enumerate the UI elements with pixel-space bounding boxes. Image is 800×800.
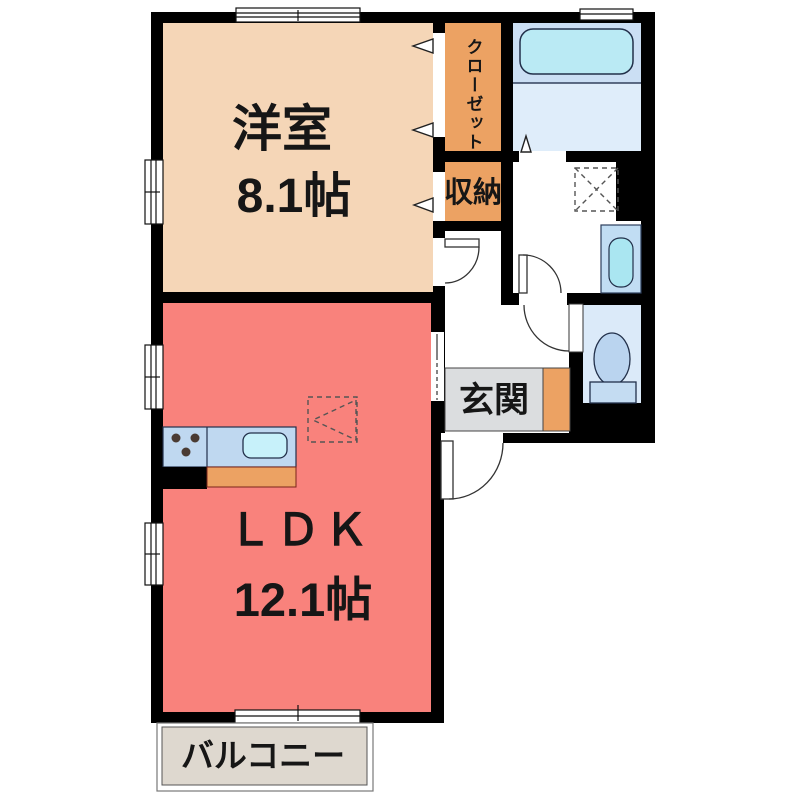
kitchen-sink-icon (243, 433, 287, 458)
shoe-cabinet (543, 368, 570, 431)
entrance-door (441, 441, 503, 499)
closet-opening (433, 33, 445, 137)
window-bathroom-top (580, 9, 633, 20)
ldk-label: ＬＤＫ (228, 506, 372, 555)
closet-label: クローゼット (464, 38, 484, 152)
entrance-label: 玄関 (459, 381, 529, 420)
kitchen (151, 427, 296, 489)
western-room-label: 洋室 (232, 101, 332, 157)
window-western-left (145, 160, 163, 224)
floor-plan: 洋室 8.1帖 クローゼット 収納 ＬＤＫ 12.1帖 玄関 バルコニー (0, 0, 800, 800)
vanity-sink-icon (601, 225, 641, 293)
western-room-door-opening (433, 238, 445, 286)
room-western (163, 23, 433, 292)
window-ldk-left (145, 523, 163, 585)
washroom-door-opening (519, 293, 567, 305)
window-kitchen-left (145, 345, 163, 409)
ldk-size: 12.1帖 (234, 573, 372, 626)
western-room-size: 8.1帖 (237, 170, 352, 223)
bathroom-lower (513, 83, 641, 151)
toilet-door-opening (569, 304, 583, 352)
bathtub-icon (520, 29, 633, 74)
window-western-top (236, 8, 360, 22)
balcony-label: バルコニー (181, 737, 345, 774)
floor-plan-canvas: 洋室 8.1帖 クローゼット 収納 ＬＤＫ 12.1帖 玄関 バルコニー (0, 0, 800, 800)
kitchen-lower-cabinet (207, 467, 296, 487)
storage-label: 収納 (444, 175, 502, 209)
kitchen-wall-stub (151, 467, 207, 489)
